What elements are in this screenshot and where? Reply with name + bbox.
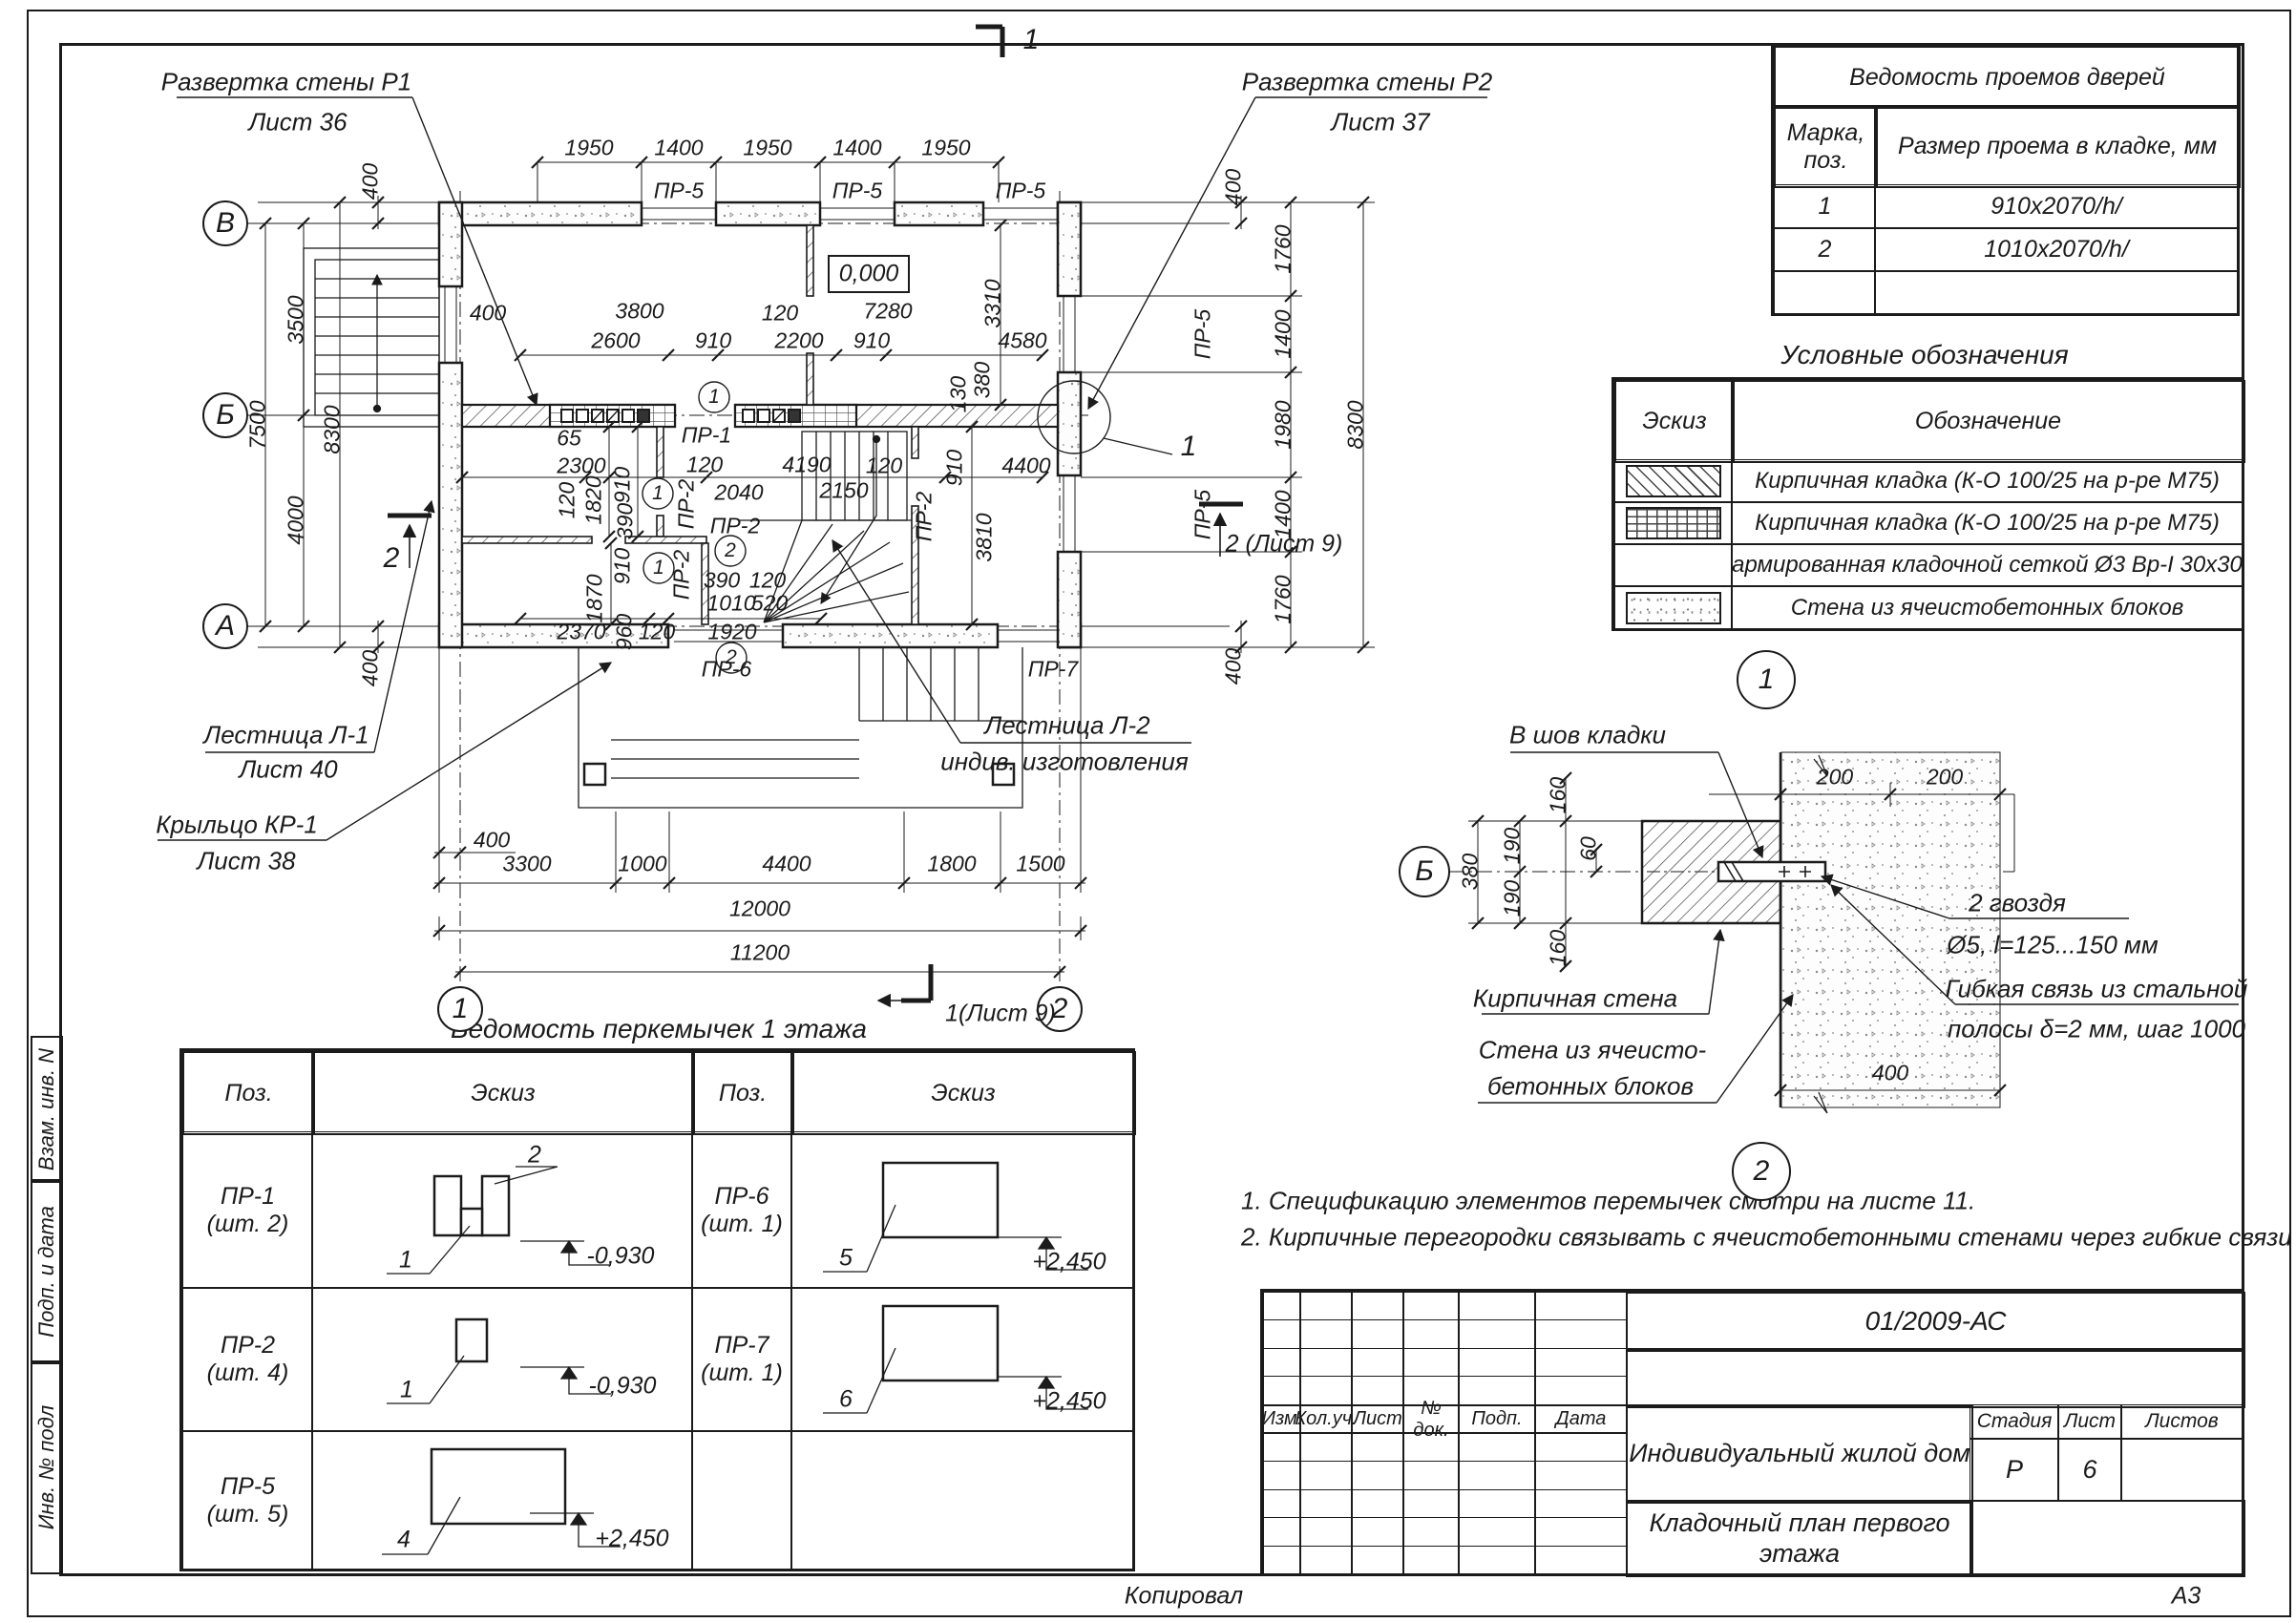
lintel-sketch-cell: [790, 1430, 1134, 1570]
legend-swatch-cell: [1614, 459, 1733, 503]
lintel-col-pos: Поз.: [691, 1051, 794, 1135]
tb-empty: [1299, 1432, 1353, 1575]
door-row-size: [1874, 270, 2239, 315]
tb-col: Лист: [1351, 1404, 1404, 1434]
lintel-col-sketch: Эскиз: [790, 1051, 1136, 1135]
stage-label: Стадия: [1970, 1404, 2059, 1440]
door-table-title: Ведомость проемов дверей: [1774, 46, 2241, 109]
lintel-pos: ПР-2(шт. 4): [182, 1287, 313, 1432]
margin-cell-inv: Инв. № подл: [31, 1360, 63, 1574]
lintel-pos: ПР-7(шт. 1): [691, 1287, 792, 1432]
lintel-col-pos: Поз.: [182, 1051, 315, 1135]
door-row-mark: 1: [1774, 184, 1876, 229]
lintel-table-title: Ведомость перкемычек 1 этажа: [451, 1014, 867, 1044]
legend-swatch-cell: [1614, 543, 1733, 587]
door-row-size: 1010x2070/h/: [1874, 227, 2239, 272]
tb-empty: [1458, 1292, 1536, 1406]
tb-col: Кол.уч.: [1299, 1404, 1353, 1434]
lintel-pos: ПР-6(шт. 1): [691, 1131, 792, 1289]
legend-swatch-cell: [1614, 501, 1733, 545]
drawing-name: Кладочный план первого этажа: [1626, 1500, 1973, 1577]
title-block-grid: Изм. Кол.уч. Лист № док. Подп. Дата: [1263, 1292, 1626, 1573]
note-1: 1. Спецификацию элементов перемычек смот…: [1241, 1187, 1975, 1216]
door-row-size: 910x2070/h/: [1874, 184, 2239, 229]
tb-empty: [1263, 1432, 1301, 1575]
lintel-table: Поз. Эскиз Поз. Эскиз ПР-1(шт. 2) ПР-6(ш…: [179, 1048, 1135, 1571]
lintel-sketch-cell: [311, 1131, 693, 1289]
legend-swatch-cell: [1614, 585, 1733, 630]
lintel-sketch-cell: [790, 1287, 1134, 1432]
tb-empty: [1534, 1292, 1628, 1406]
margin-cell-podp: Подп. и дата: [31, 1179, 63, 1364]
drawing-sheet: Взам. инв. N Подп. и дата Инв. № подл Ве…: [0, 0, 2296, 1623]
lintel-sketch-cell: [311, 1287, 693, 1432]
door-row-mark: 2: [1774, 227, 1876, 272]
legend-desc: армированная кладочной сеткой Ø3 Вр-I 30…: [1731, 543, 2243, 587]
legend-desc: Кирпичная кладка (К-О 100/25 на р-ре М75…: [1731, 459, 2243, 503]
margin-cell-vzam: Взам. инв. N: [31, 1036, 63, 1183]
sheet-label: Лист: [2057, 1404, 2122, 1440]
tb-empty: [1263, 1292, 1301, 1406]
lintel-sketch-cell: [790, 1131, 1134, 1289]
sheets-value: [2120, 1438, 2243, 1502]
doc-number: 01/2009-АС: [1626, 1292, 2245, 1352]
tb-empty: [1402, 1432, 1460, 1575]
diagonal-hatch-swatch: [1626, 465, 1721, 497]
grid-hatch-swatch: [1626, 507, 1721, 539]
sheet-value: 6: [2057, 1438, 2122, 1502]
tb-empty: [1534, 1432, 1628, 1575]
legend-title: Условные обозначения: [1780, 340, 2068, 370]
door-row-mark: [1774, 270, 1876, 315]
tb-col: Подп.: [1458, 1404, 1536, 1434]
tb-empty: [1402, 1292, 1460, 1406]
sheets-label: Листов: [2120, 1404, 2243, 1440]
tb-col: Дата: [1534, 1404, 1628, 1434]
margin-label: Взам. инв. N: [34, 1048, 59, 1170]
stipple-swatch: [1626, 592, 1721, 624]
door-openings-table: Ведомость проемов дверей Марка, поз. Раз…: [1771, 43, 2240, 316]
tb-empty: [1458, 1432, 1536, 1575]
tb-empty: [1299, 1292, 1353, 1406]
lintel-pos: [691, 1430, 792, 1570]
lintel-col-sketch: Эскиз: [311, 1051, 695, 1135]
margin-label: Инв. № подл: [34, 1405, 59, 1529]
door-table-col-mark: Марка, поз.: [1774, 105, 1878, 188]
tb-org-cell: [1970, 1500, 2245, 1577]
margin-label: Подп. и дата: [34, 1206, 59, 1338]
tb-col: № док.: [1402, 1404, 1460, 1434]
legend-table: Эскиз Обозначение Кирпичная кладка (К-О …: [1611, 377, 2244, 631]
stage-value: Р: [1970, 1438, 2059, 1502]
legend-col-desc: Обозначение: [1731, 380, 2245, 463]
tb-empty-band: [1626, 1348, 2245, 1408]
tb-empty: [1351, 1292, 1404, 1406]
legend-desc: Кирпичная кладка (К-О 100/25 на р-ре М75…: [1731, 501, 2243, 545]
note-2: 2. Кирпичные перегородки связывать с яче…: [1241, 1223, 2296, 1253]
lintel-sketch-cell: [311, 1430, 693, 1570]
tb-empty: [1351, 1432, 1404, 1575]
title-block: Изм. Кол.уч. Лист № док. Подп. Дата: [1260, 1289, 2244, 1576]
legend-col-sketch: Эскиз: [1614, 380, 1735, 463]
lintel-pos: ПР-1(шт. 2): [182, 1131, 313, 1289]
door-table-col-size: Размер проема в кладке, мм: [1874, 105, 2241, 188]
project-name: Индивидуальный жилой дом: [1626, 1404, 1973, 1504]
legend-desc: Стена из ячеистобетонных блоков: [1731, 585, 2243, 630]
lintel-pos: ПР-5(шт. 5): [182, 1430, 313, 1570]
